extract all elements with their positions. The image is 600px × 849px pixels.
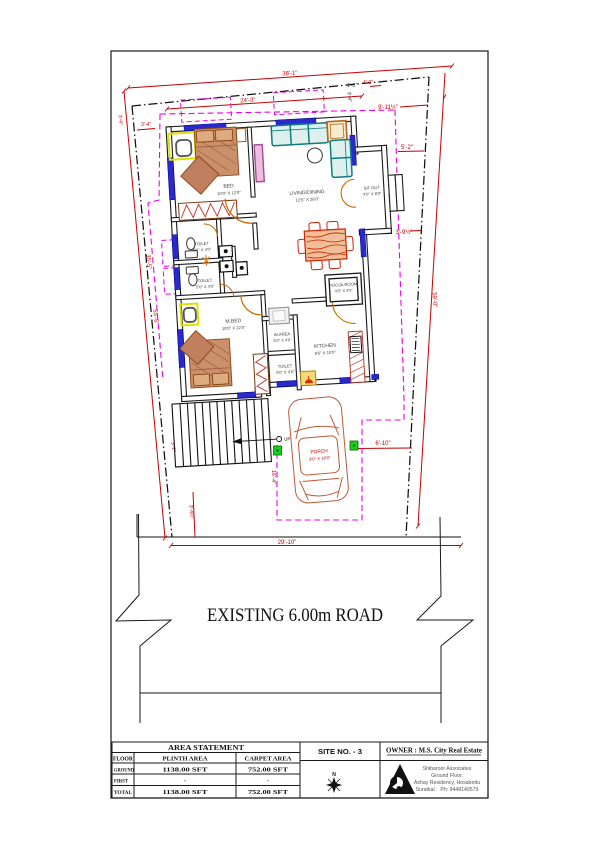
svg-text:CARPET AREA: CARPET AREA [245, 756, 293, 763]
svg-text:1'-0": 1'-0" [347, 83, 357, 89]
svg-text:PLINTH AREA: PLINTH AREA [163, 756, 209, 763]
svg-text:752.00 SFT: 752.00 SFT [248, 789, 289, 796]
svg-text:4'-0": 4'-0" [363, 80, 373, 86]
svg-text:3'-4½": 3'-4½" [187, 505, 195, 520]
svg-text:752.00 SFT: 752.00 SFT [248, 767, 289, 774]
svg-text:OWNER : M.S. City Real Estate: OWNER : M.S. City Real Estate [386, 748, 482, 755]
svg-text:BED: BED [223, 183, 234, 190]
svg-text:59'-0": 59'-0" [431, 292, 438, 308]
svg-text:TOILET: TOILET [197, 278, 212, 284]
svg-text:Ashay Residency, Hosabettu: Ashay Residency, Hosabettu [414, 780, 480, 786]
svg-text:AREA STATEMENT: AREA STATEMENT [168, 743, 244, 752]
svg-text:M.BED: M.BED [225, 318, 242, 325]
svg-text:N: N [332, 772, 336, 778]
svg-text:3'-9½": 3'-9½" [396, 229, 413, 236]
svg-text:TOTAL: TOTAL [114, 790, 132, 796]
svg-text:W.AREA: W.AREA [274, 331, 291, 337]
svg-text:24'-3": 24'-3" [240, 97, 256, 104]
svg-text:SIT OUT: SIT OUT [363, 185, 380, 191]
svg-text:EXISTING 6.00m ROAD: EXISTING 6.00m ROAD [207, 605, 383, 626]
svg-text:-: - [184, 779, 186, 785]
svg-text:Ground Floor,: Ground Floor, [431, 773, 463, 779]
svg-text:Suratkal. Ph: 9448149579: Suratkal. Ph: 9448149579 [416, 787, 479, 793]
svg-text:SITE NO. - 3: SITE NO. - 3 [318, 747, 362, 756]
svg-text:6'-10": 6'-10" [375, 441, 390, 447]
svg-text:FLOOR: FLOOR [113, 757, 134, 763]
svg-text:TOILET: TOILET [194, 241, 209, 247]
svg-text:3'-4": 3'-4" [346, 92, 353, 103]
svg-text:TOILET: TOILET [278, 363, 293, 369]
svg-text:29'-10": 29'-10" [278, 540, 297, 546]
svg-text:1138.00 SFT: 1138.00 SFT [163, 789, 209, 796]
svg-text:KITCHEN: KITCHEN [314, 343, 337, 350]
svg-text:FIRST: FIRST [114, 779, 128, 785]
svg-text:16'-4": 16'-4" [270, 470, 276, 484]
svg-text:3'-4": 3'-4" [141, 122, 151, 128]
svg-text:38'-1": 38'-1" [282, 70, 298, 77]
svg-text:3'-4": 3'-4" [117, 115, 124, 126]
svg-text:-: - [267, 779, 269, 785]
svg-text:GROUND: GROUND [114, 768, 134, 774]
svg-text:1138.00 SFT: 1138.00 SFT [163, 767, 209, 774]
svg-text:Shibaroor Associates: Shibaroor Associates [423, 766, 472, 772]
svg-text:UP: UP [284, 436, 291, 441]
svg-text:5'-2": 5'-2" [401, 145, 413, 151]
